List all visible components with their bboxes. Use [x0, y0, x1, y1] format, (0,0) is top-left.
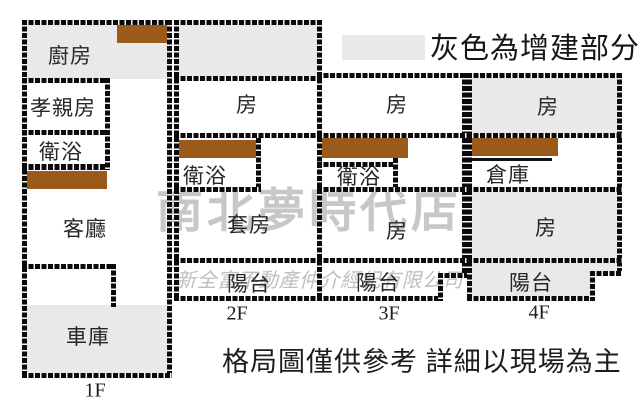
wall: [256, 138, 261, 192]
wall: [590, 271, 595, 301]
floor-label-3f: 3F: [378, 303, 399, 326]
wall: [22, 20, 172, 25]
room-label-storage: 倉庫: [486, 159, 530, 189]
wall: [105, 130, 110, 170]
floor-label-1f: 1F: [84, 380, 105, 403]
extension-fill-2f-top-room: [179, 25, 317, 78]
wall: [617, 73, 622, 276]
room-label-balcony-2f: 陽台: [227, 268, 271, 298]
floorplan-diagram: 南北夢時代店 新全富不動產仲介經紀有限公司 廚房 孝親房 衛浴 客廳 車庫 1F…: [0, 0, 640, 414]
room-label-living-room: 客廳: [63, 213, 107, 243]
wall: [467, 133, 622, 138]
wall: [317, 258, 467, 263]
wall: [174, 76, 322, 81]
floor-label-4f: 4F: [528, 302, 549, 325]
wall: [105, 78, 110, 135]
wall: [438, 273, 467, 278]
legend-gray-swatch: [342, 35, 425, 60]
wall: [111, 264, 116, 307]
wall: [22, 78, 110, 83]
room-label-elder-room: 孝親房: [30, 92, 96, 122]
cabinet-fill-1f-top: [117, 25, 167, 43]
wall: [317, 133, 467, 138]
wall: [167, 20, 172, 378]
room-label-balcony-3f: 陽台: [356, 267, 400, 297]
wall: [174, 258, 322, 263]
room-label-kitchen: 廚房: [48, 40, 92, 70]
room-label-4f-room-upper: 房: [537, 91, 559, 121]
room-label-balcony-4f: 陽台: [509, 267, 553, 297]
wall: [22, 20, 27, 378]
cabinet-fill-1f-mid: [25, 171, 107, 189]
room-label-bathroom-1f: 衛浴: [39, 136, 83, 166]
wall: [22, 264, 116, 269]
room-label-3f-room-upper: 房: [386, 89, 408, 119]
wall: [22, 373, 172, 378]
room-label-garage: 車庫: [66, 321, 110, 351]
disclaimer-text: 格局圖僅供參考 詳細以現場為主: [222, 340, 622, 379]
cabinet-fill-3f: [322, 138, 408, 158]
wall: [467, 258, 622, 263]
room-label-2f-room: 房: [236, 89, 258, 119]
cabinet-fill-4f: [472, 138, 558, 156]
wall: [317, 73, 467, 78]
wall: [174, 133, 322, 138]
extension-fill-4f-balcony-corner: [590, 263, 617, 271]
wall: [22, 130, 110, 135]
room-label-bathroom-3f: 衛浴: [337, 161, 381, 191]
wall: [174, 20, 322, 25]
wall: [467, 73, 622, 78]
cabinet-fill-2f: [176, 140, 258, 158]
legend-label: 灰色為增建部分: [430, 25, 640, 67]
room-label-bathroom-2f: 衛浴: [183, 160, 227, 190]
room-label-suite: 套房: [227, 209, 271, 239]
floor-label-2f: 2F: [226, 303, 247, 326]
room-label-3f-room-lower: 房: [386, 215, 408, 245]
room-label-4f-room-lower: 房: [535, 212, 557, 242]
